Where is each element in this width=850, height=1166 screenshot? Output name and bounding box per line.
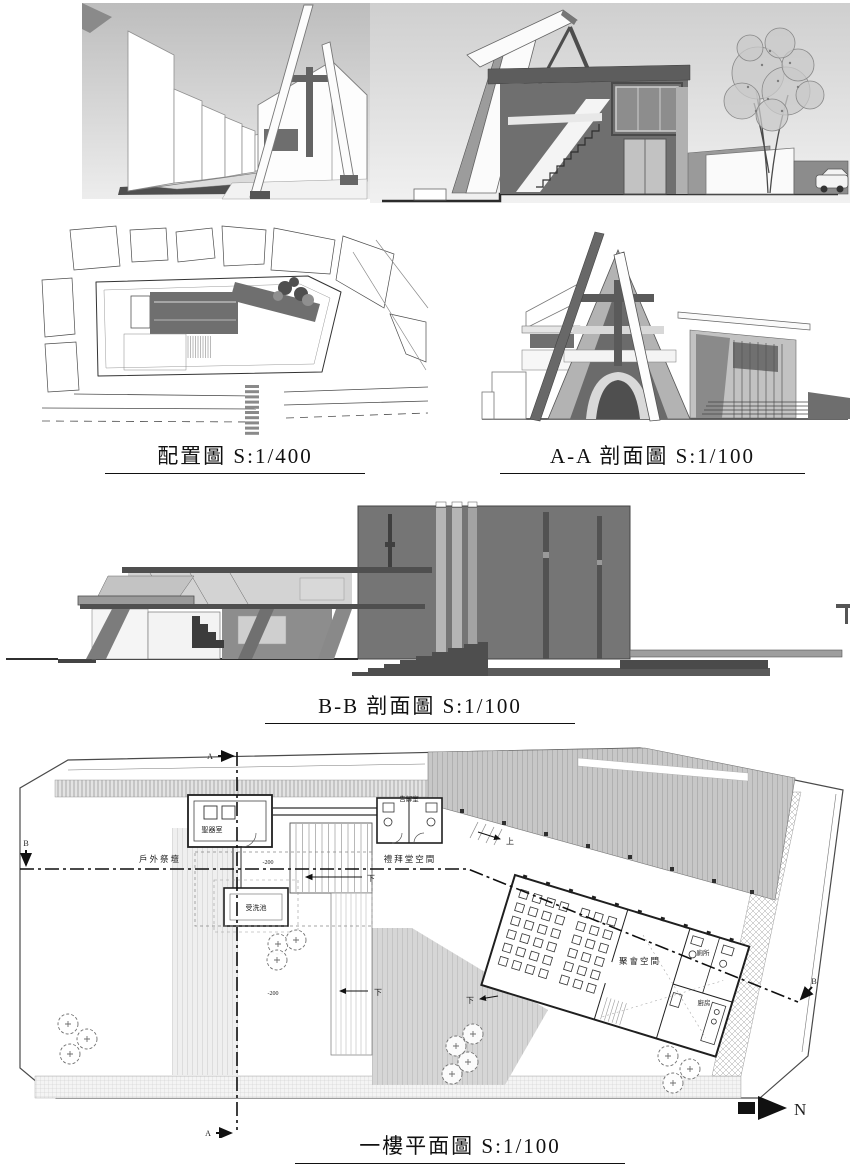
room-label-baptismal-font: 受洗池 — [246, 903, 267, 912]
section-marker-a-bottom: A — [205, 1129, 231, 1138]
room-label-assembly: 聚會空間 — [619, 956, 661, 966]
title-site-plan: 配置圖 S:1/400 — [105, 440, 365, 474]
tower-mass — [358, 506, 630, 659]
baptismal-font: 受洗池 — [224, 888, 288, 926]
vestry-room: 聖器室 — [188, 795, 272, 847]
roads — [42, 387, 428, 422]
garden-wall — [706, 148, 794, 194]
section-aa-drawing — [478, 222, 850, 434]
title-section-aa: A-A 剖面圖 S:1/100 — [500, 440, 805, 474]
building-roof — [150, 292, 238, 334]
upper-window — [616, 87, 678, 131]
north-arrow-icon: N — [738, 1096, 806, 1120]
floor-plan-drawing: 聖器室 受洗池 告解室 — [0, 740, 850, 1138]
level-label: -200 — [268, 991, 279, 997]
room-label-chapel: 禮拜堂空間 — [384, 854, 437, 864]
svg-text:B: B — [23, 839, 28, 848]
room-label-toilet: 廁所 — [697, 948, 711, 957]
paved-path — [172, 828, 238, 1075]
street-perspective-rendering — [82, 3, 372, 206]
main-stair — [290, 823, 372, 893]
title-section-bb: B-B 剖面圖 S:1/100 — [265, 690, 575, 724]
level-label: -200 — [263, 860, 274, 866]
title-floor-plan: 一樓平面圖 S:1/100 — [295, 1130, 625, 1164]
zebra-crossing — [245, 385, 259, 435]
section-bb-drawing — [0, 492, 850, 684]
room-label-outdoor-altar: 戶外祭壇 — [139, 854, 181, 864]
stair-down-label: 下 — [466, 996, 474, 1005]
section-cut-building — [488, 65, 690, 194]
presentation-sheet: 聖器室 受洗池 告解室 — [0, 0, 850, 1166]
platform-slab — [630, 650, 842, 657]
cross-icon — [614, 280, 622, 366]
room-label-vestry: 聖器室 — [202, 825, 223, 834]
sectional-perspective-rendering — [370, 3, 850, 208]
svg-text:A: A — [205, 1129, 211, 1138]
confession-room: 告解室 — [377, 794, 442, 843]
north-label: N — [794, 1100, 806, 1119]
room-label-kitchen: 廚房 — [698, 998, 711, 1007]
stair-up-label: 上 — [506, 837, 514, 846]
ramp — [331, 893, 372, 1055]
site-plan-drawing — [38, 222, 430, 438]
roof-beam — [122, 567, 432, 573]
stair-down-label: 下 — [374, 988, 382, 997]
right-wing — [678, 312, 850, 419]
svg-text:A: A — [207, 752, 213, 761]
room-label-confession: 告解室 — [399, 794, 419, 803]
svg-text:B: B — [811, 977, 816, 986]
stair-down-label: 下 — [367, 874, 375, 883]
